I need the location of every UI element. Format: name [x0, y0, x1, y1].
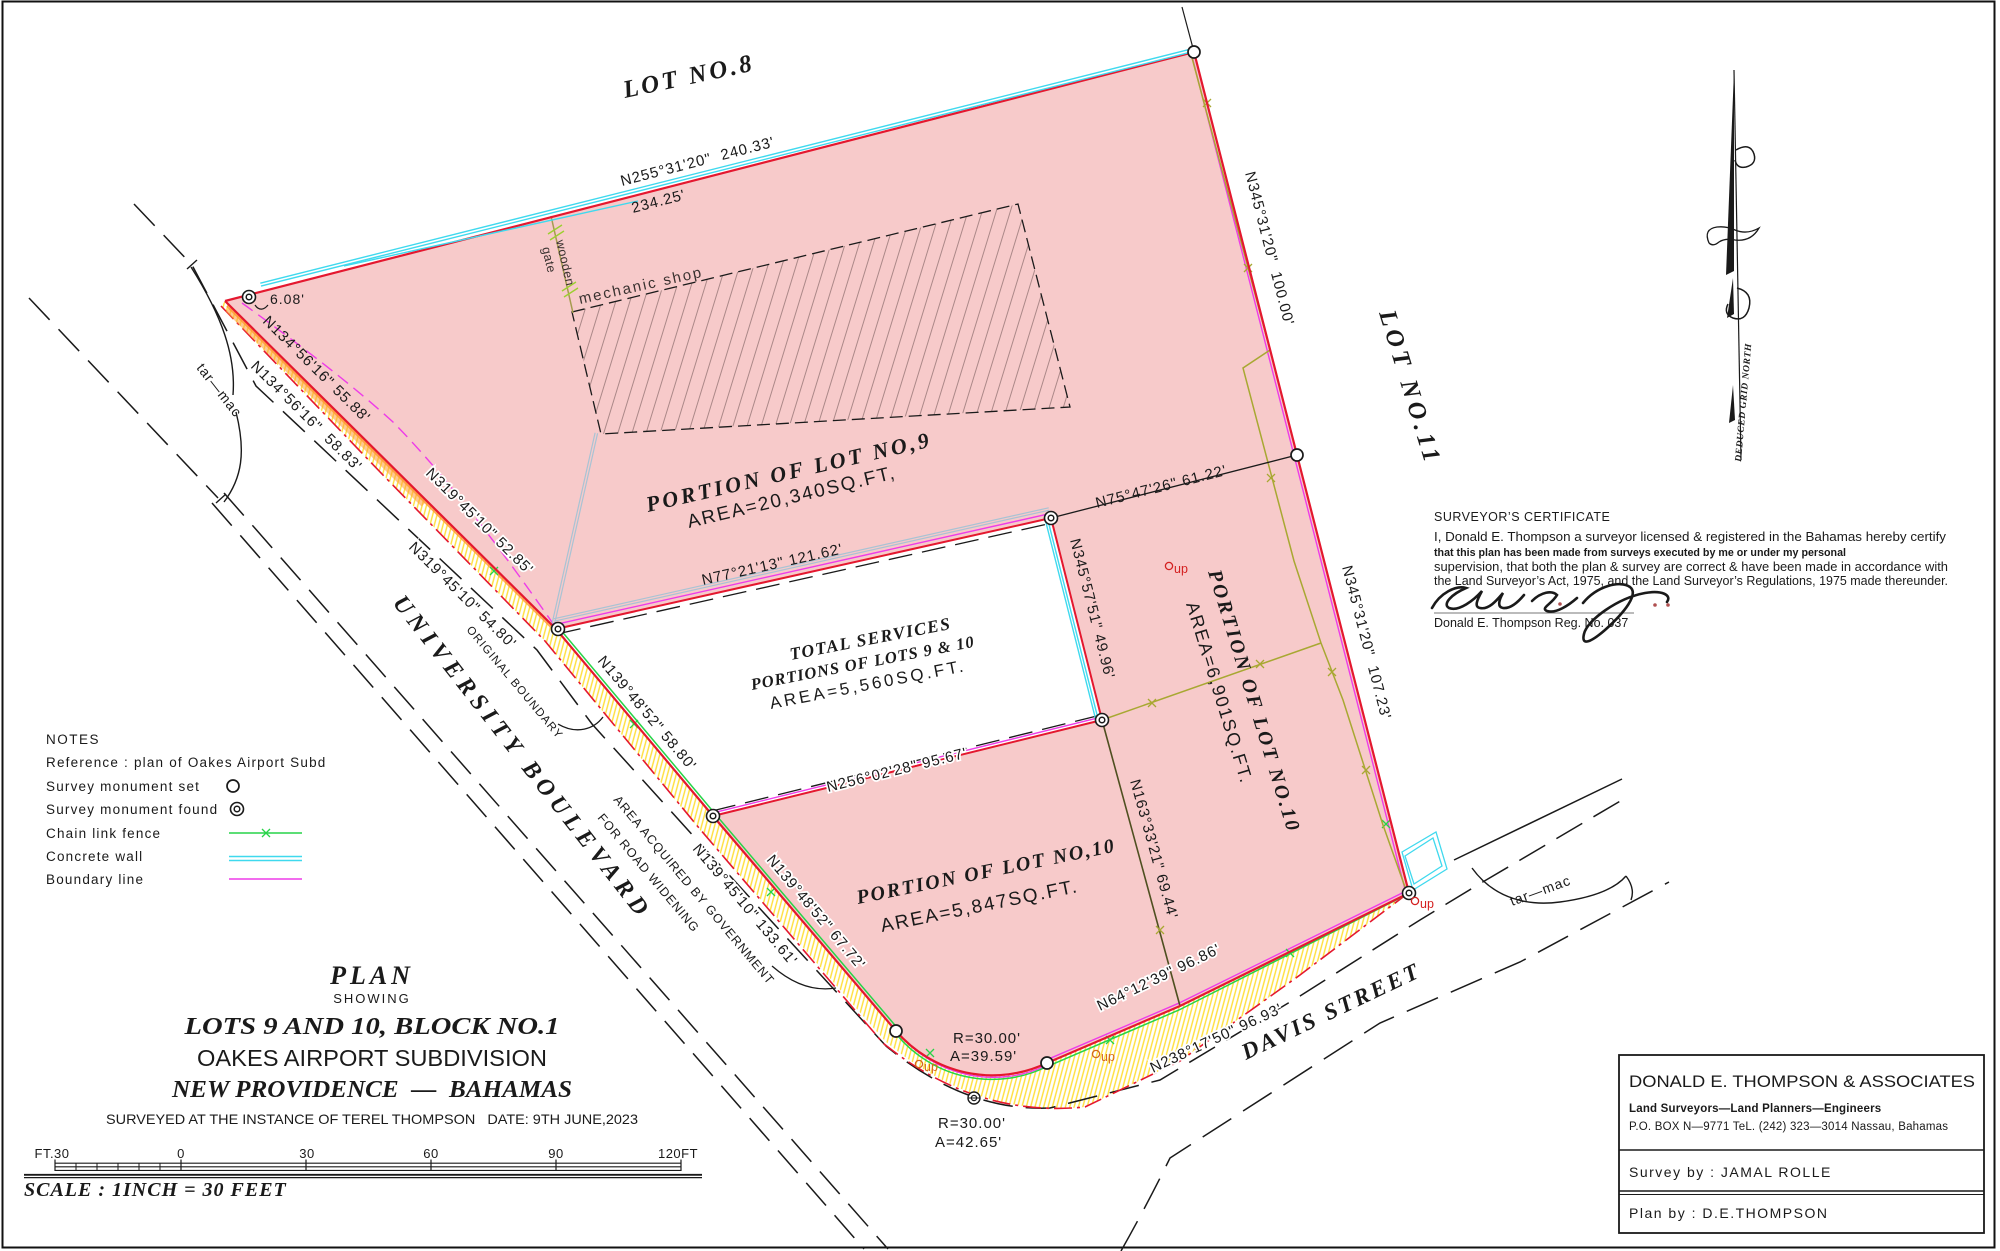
- svg-text:the Land Surveyor’s Act, 1975,: the Land Surveyor’s Act, 1975, and the L…: [1434, 574, 1948, 588]
- svg-text:FT.30: FT.30: [34, 1146, 69, 1161]
- svg-text:SURVEYED AT THE INSTANCE OF TE: SURVEYED AT THE INSTANCE OF TEREL THOMPS…: [106, 1111, 638, 1127]
- svg-text:PLAN: PLAN: [329, 961, 414, 990]
- svg-text:Donald E. Thompson Reg. No. 03: Donald E. Thompson Reg. No. 037: [1434, 616, 1628, 630]
- svg-text:Concrete wall: Concrete wall: [46, 849, 143, 864]
- svg-text:OAKES AIRPORT SUBDIVISION: OAKES AIRPORT SUBDIVISION: [197, 1045, 547, 1071]
- svg-text:NEW PROVIDENCE — BAHAMAS: NEW PROVIDENCE — BAHAMAS: [171, 1077, 572, 1103]
- svg-text:DONALD E. THOMPSON & ASSOCIATE: DONALD E. THOMPSON & ASSOCIATES: [1629, 1072, 1975, 1091]
- svg-text:SURVEYOR’S CERTIFICATE: SURVEYOR’S CERTIFICATE: [1434, 510, 1610, 524]
- svg-text:0: 0: [177, 1146, 185, 1161]
- svg-text:Land Surveyors—Land Planners—E: Land Surveyors—Land Planners—Engineers: [1629, 1103, 1881, 1115]
- svg-text:120FT: 120FT: [658, 1146, 698, 1161]
- svg-text:SHOWING: SHOWING: [333, 991, 411, 1006]
- svg-text:supervision, that both the pla: supervision, that both the plan & survey…: [1434, 560, 1948, 574]
- svg-text:NOTES: NOTES: [46, 732, 100, 747]
- svg-text:6.08': 6.08': [270, 291, 305, 307]
- svg-text:Survey monument set: Survey monument set: [46, 779, 200, 794]
- svg-text:Boundary line: Boundary line: [46, 872, 144, 887]
- svg-text:P.O. BOX N—9771 TeL. (242) 323: P.O. BOX N—9771 TeL. (242) 323—3014 Nass…: [1629, 1121, 1948, 1133]
- svg-text:Survey by : JAMAL ROLLE: Survey by : JAMAL ROLLE: [1629, 1164, 1832, 1180]
- svg-text:R=30.00': R=30.00': [953, 1030, 1021, 1047]
- svg-text:90: 90: [548, 1146, 563, 1161]
- svg-text:30: 30: [299, 1146, 314, 1161]
- svg-text:I, Donald E. Thompson a survey: I, Donald E. Thompson a surveyor license…: [1434, 530, 1947, 544]
- svg-text:A=39.59': A=39.59': [950, 1048, 1017, 1065]
- svg-text:SCALE : 1INCH = 30 FEET: SCALE : 1INCH = 30 FEET: [24, 1179, 287, 1201]
- svg-text:up: up: [1174, 562, 1188, 576]
- svg-text:Reference : plan of Oakes Airp: Reference : plan of Oakes Airport Subd: [46, 755, 327, 770]
- svg-text:A=42.65': A=42.65': [935, 1134, 1002, 1151]
- svg-text:Plan by : D.E.THOMPSON: Plan by : D.E.THOMPSON: [1629, 1205, 1828, 1221]
- svg-text:R=30.00': R=30.00': [938, 1115, 1006, 1132]
- svg-text:up: up: [1101, 1050, 1115, 1064]
- svg-text:LOTS 9 AND 10, BLOCK NO.1: LOTS 9 AND 10, BLOCK NO.1: [183, 1014, 559, 1040]
- svg-text:up: up: [924, 1060, 938, 1074]
- svg-text:that this plan has been made f: that this plan has been made from survey…: [1434, 547, 1846, 559]
- svg-text:60: 60: [423, 1146, 438, 1161]
- svg-text:up: up: [1420, 897, 1434, 911]
- svg-text:Survey monument found: Survey monument found: [46, 802, 218, 817]
- svg-text:Chain link fence: Chain link fence: [46, 826, 161, 841]
